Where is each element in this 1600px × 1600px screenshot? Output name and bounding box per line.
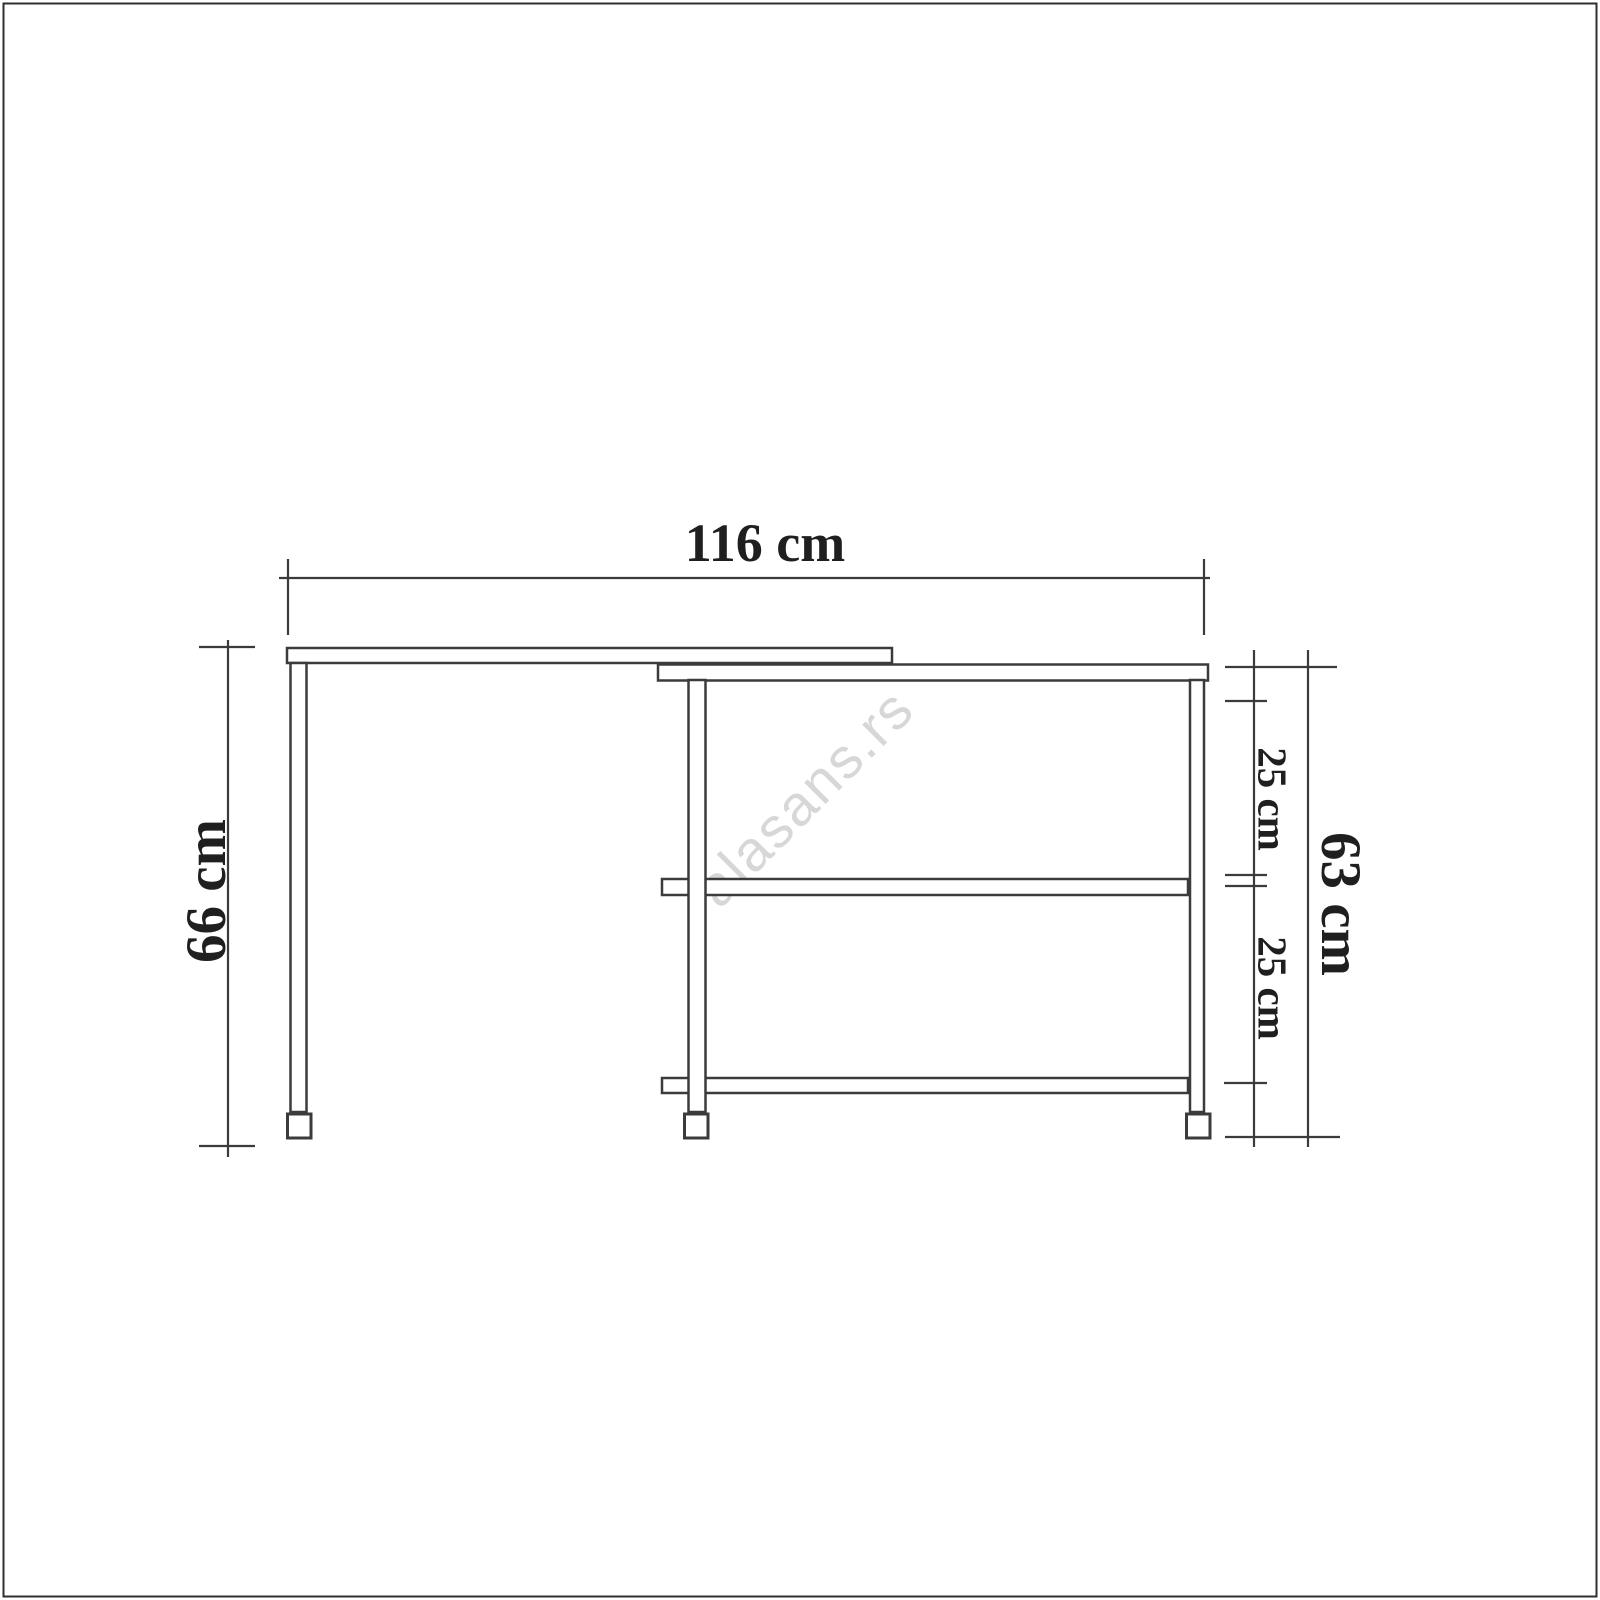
furniture-dimension-diagram: alasans.rs (0, 0, 1600, 1600)
right-height-dimension-label: 63 cm (1309, 832, 1372, 976)
bottom-shelf-board (662, 1078, 1188, 1093)
middle-leg (689, 680, 706, 1112)
gap-bottom-dimension-label: 25 cm (1249, 936, 1295, 1040)
left-height-dimension-label: 66 cm (175, 819, 238, 963)
feet (288, 1114, 1211, 1138)
desk-structure (287, 648, 1210, 1138)
right-foot (1187, 1114, 1211, 1138)
middle-foot (685, 1114, 709, 1138)
gap-top-dimension-label: 25 cm (1249, 747, 1295, 851)
desktop-right-board (658, 665, 1208, 681)
left-foot (288, 1114, 312, 1138)
left-leg (291, 663, 307, 1112)
desktop-left-board (287, 648, 892, 663)
width-dimension-label: 116 cm (685, 513, 845, 573)
technical-drawing-page: alasans.rs (0, 0, 1600, 1600)
middle-shelf-board (662, 879, 1188, 895)
right-leg (1190, 680, 1204, 1112)
